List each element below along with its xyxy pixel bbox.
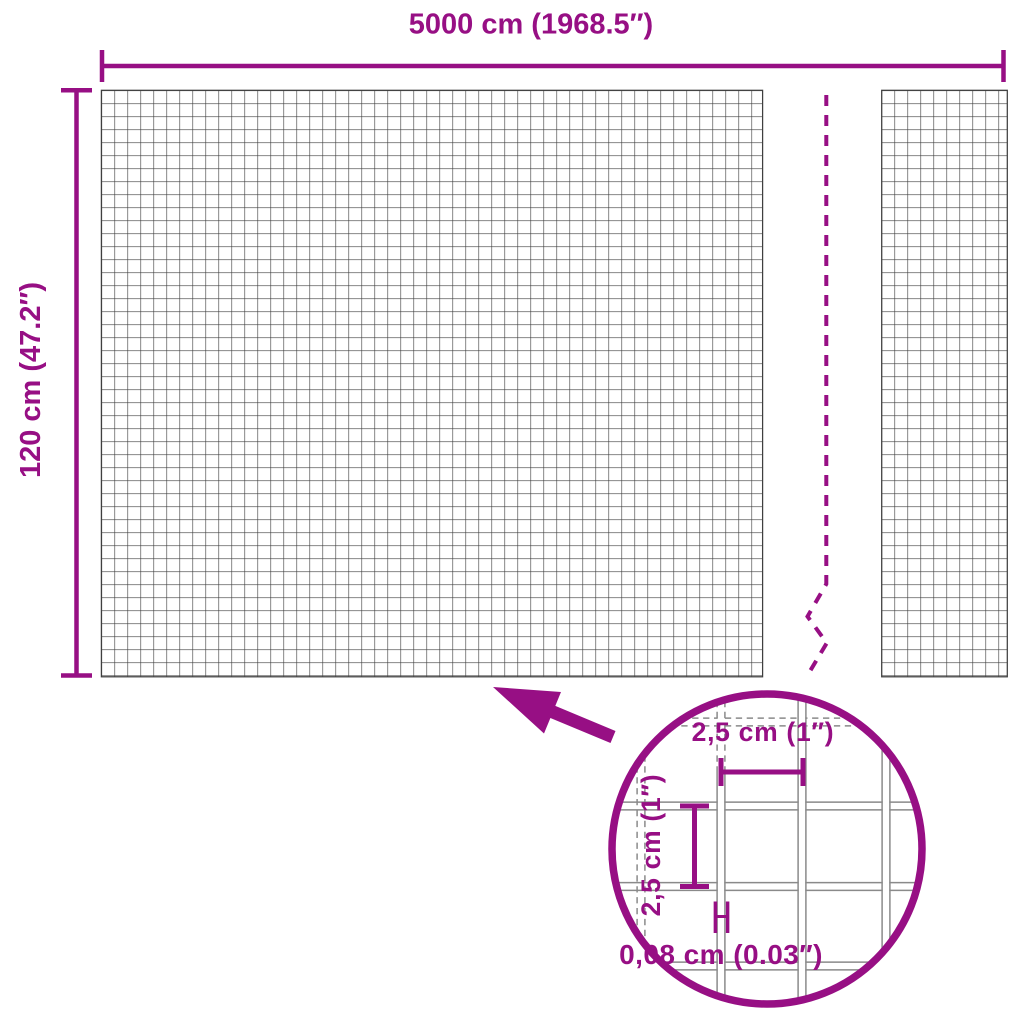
svg-text:0,08 cm (0.03″): 0,08 cm (0.03″) — [619, 939, 823, 970]
svg-text:120 cm (47.2″): 120 cm (47.2″) — [15, 282, 47, 478]
svg-text:5000 cm (1968.5″): 5000 cm (1968.5″) — [409, 9, 653, 41]
svg-text:2,5 cm (1″): 2,5 cm (1″) — [636, 774, 666, 917]
svg-text:2,5 cm (1″): 2,5 cm (1″) — [692, 717, 835, 747]
